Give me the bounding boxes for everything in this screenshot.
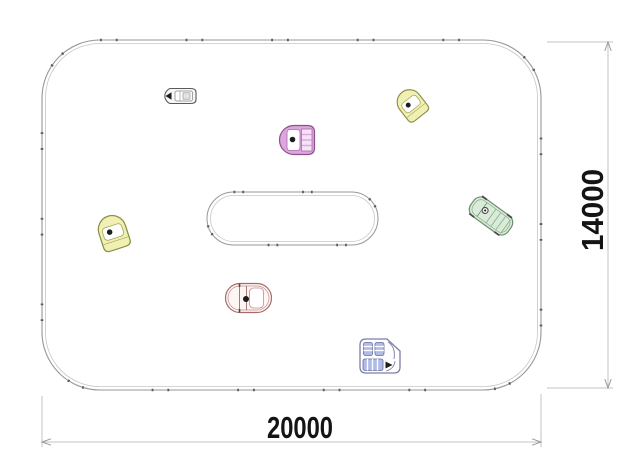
car-grey-top-left: [165, 89, 196, 104]
dimension-width: 20000: [42, 394, 541, 447]
car-green-right: [466, 194, 516, 239]
floor-plan-canvas: 20000 14000: [0, 0, 638, 466]
center-island: [207, 192, 378, 245]
car-seat: [364, 343, 373, 356]
island-outer-line: [207, 192, 378, 245]
car-seat: [250, 288, 264, 308]
car-purple-bottom-right: [360, 339, 400, 373]
dimension-height: 14000: [547, 42, 613, 388]
car-seat: [375, 343, 384, 356]
seat-cushion: [183, 93, 190, 99]
car-pink-top-center: [280, 126, 315, 155]
width-dimension-label: 20000: [267, 410, 333, 445]
car-yellow-left: [95, 212, 132, 253]
driver-dot: [243, 296, 249, 302]
driver-dot: [290, 137, 296, 143]
arena-layout-drawing: 20000 14000: [0, 0, 638, 466]
car-red-bottom-center: [226, 284, 272, 313]
car-yellow-top-right: [392, 85, 430, 124]
height-dimension-label: 14000: [575, 169, 610, 251]
